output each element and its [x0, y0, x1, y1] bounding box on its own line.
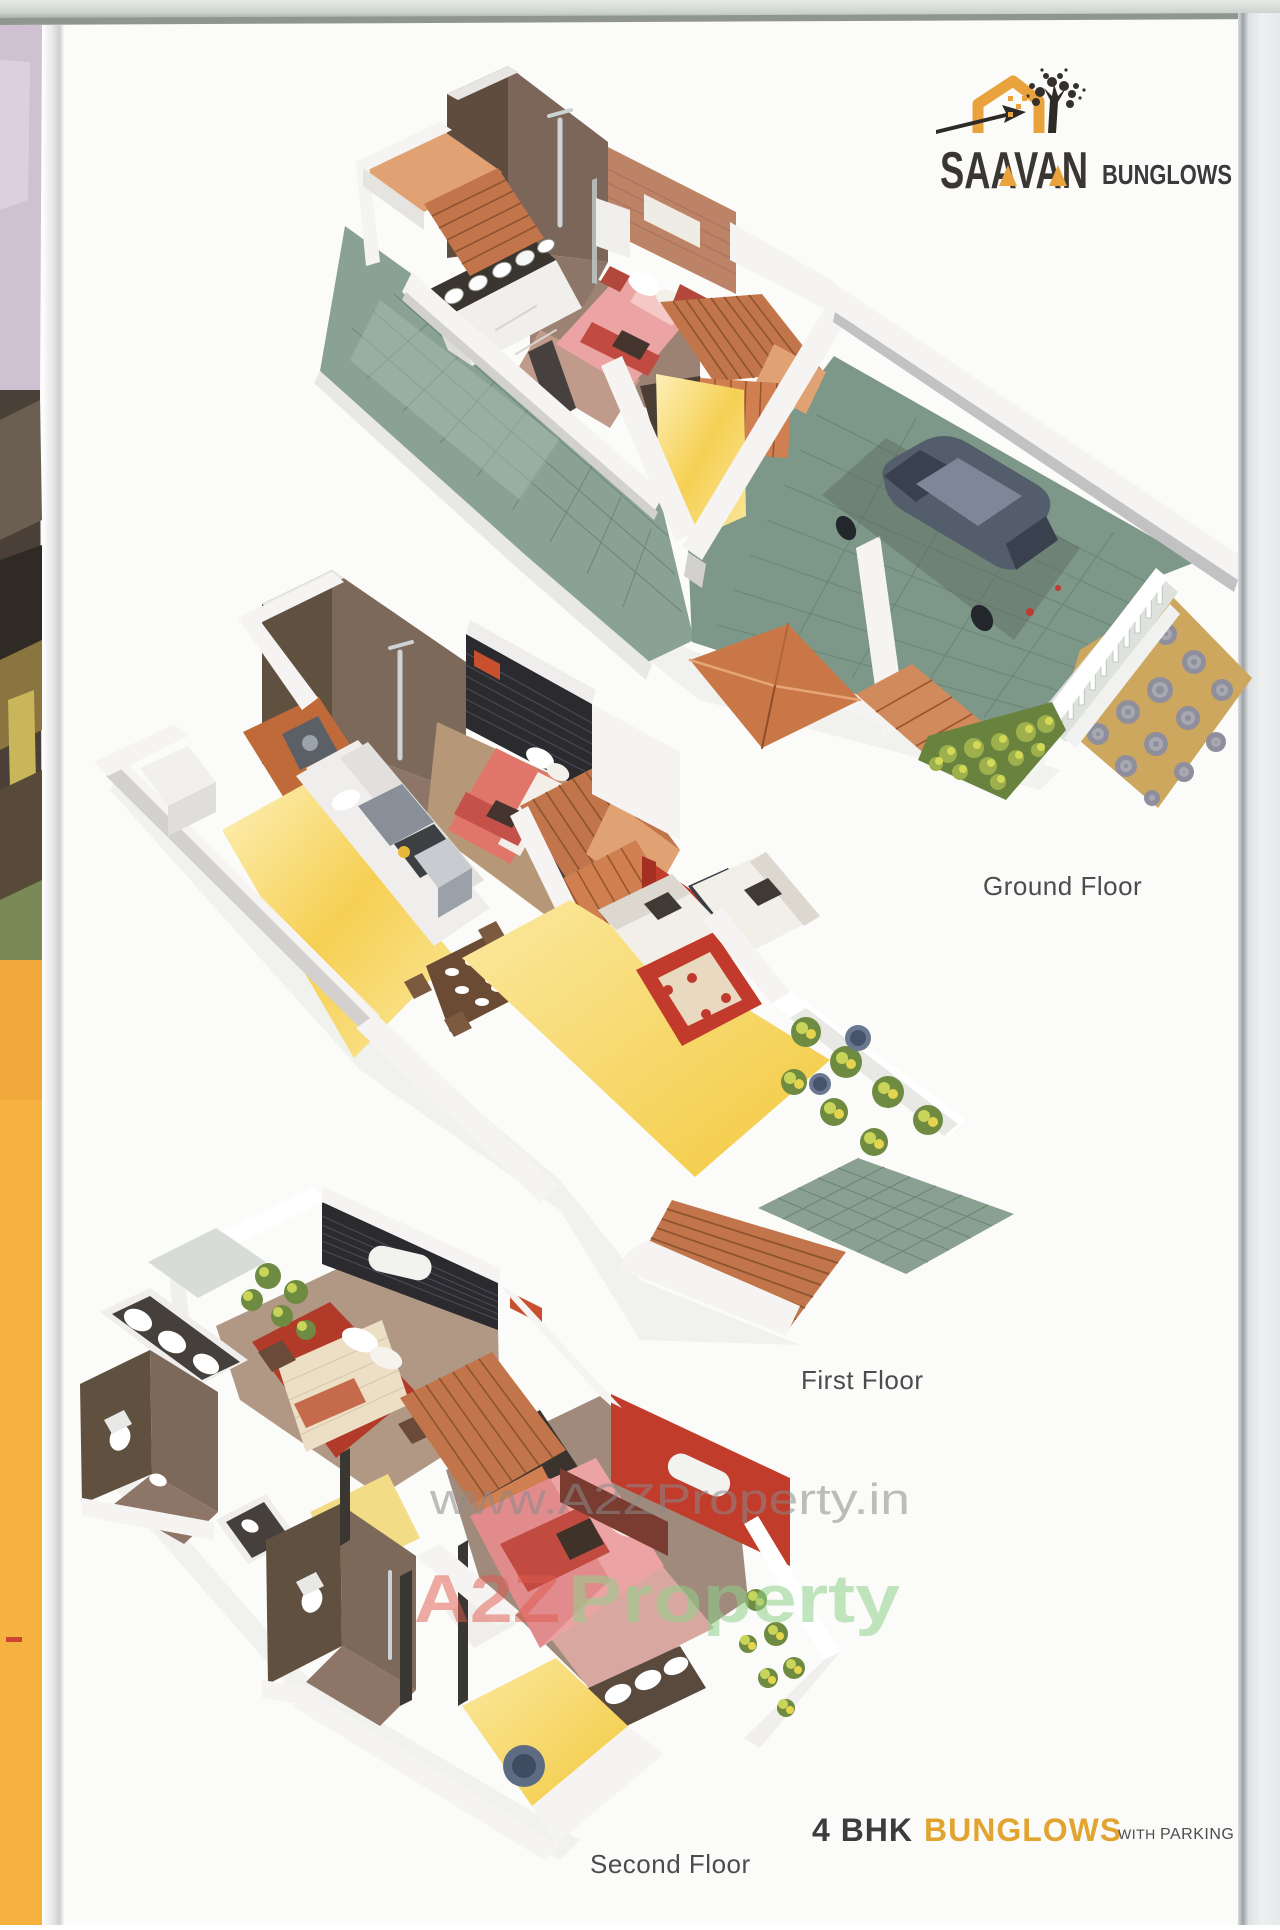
svg-text:Property: Property: [568, 1561, 900, 1637]
svg-text:4 BHK: 4 BHK: [812, 1812, 913, 1848]
svg-text:First Floor: First Floor: [801, 1365, 924, 1395]
svg-text:PARKING: PARKING: [1160, 1826, 1234, 1843]
svg-text:BUNGLOWS: BUNGLOWS: [1102, 159, 1232, 190]
svg-text:SAAVAN: SAAVAN: [940, 142, 1088, 200]
svg-text:BUNGLOWS: BUNGLOWS: [924, 1812, 1122, 1848]
svg-text:Ground Floor: Ground Floor: [983, 871, 1142, 901]
svg-text:Second Floor: Second Floor: [590, 1849, 751, 1879]
svg-text:WITH: WITH: [1118, 1826, 1156, 1842]
svg-text:A2Z: A2Z: [414, 1561, 560, 1637]
svg-text:www.A2ZProperty.in: www.A2ZProperty.in: [429, 1475, 910, 1524]
